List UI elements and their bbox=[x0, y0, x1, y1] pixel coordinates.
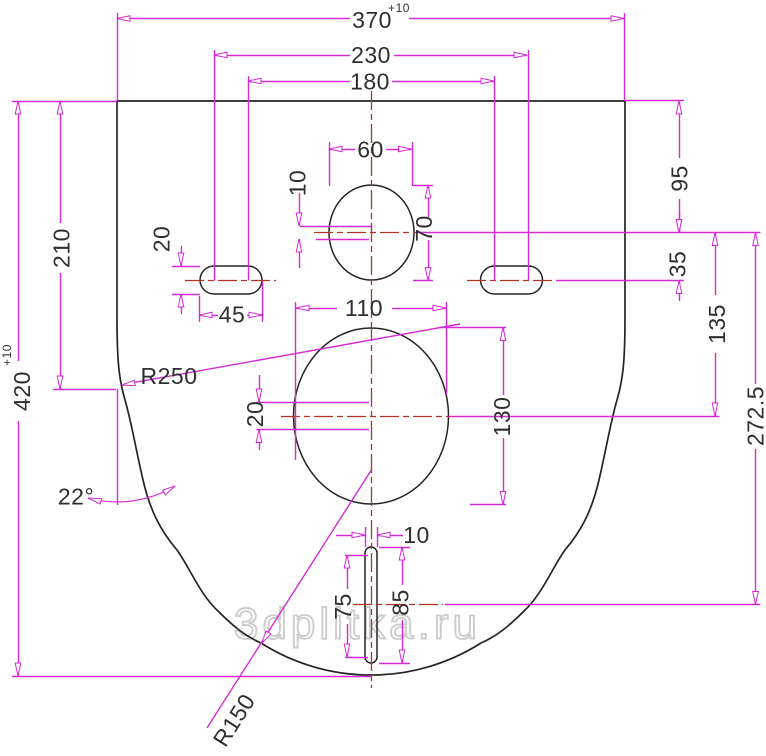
svg-text:+10: +10 bbox=[388, 1, 410, 15]
svg-text:85: 85 bbox=[388, 589, 414, 616]
svg-text:210: 210 bbox=[49, 228, 75, 268]
svg-text:45: 45 bbox=[219, 302, 246, 328]
svg-text:35: 35 bbox=[665, 251, 691, 278]
svg-text:R150: R150 bbox=[208, 689, 261, 751]
svg-text:22°: 22° bbox=[58, 484, 94, 510]
svg-text:R250: R250 bbox=[141, 363, 198, 389]
svg-text:130: 130 bbox=[489, 397, 515, 437]
svg-text:230: 230 bbox=[351, 42, 391, 68]
svg-text:110: 110 bbox=[345, 295, 383, 321]
svg-text:75: 75 bbox=[330, 593, 356, 620]
svg-text:20: 20 bbox=[242, 401, 268, 428]
svg-text:10: 10 bbox=[403, 522, 430, 548]
svg-text:135: 135 bbox=[704, 304, 730, 344]
svg-text:70: 70 bbox=[411, 215, 437, 242]
svg-text:20: 20 bbox=[149, 226, 175, 253]
svg-text:10: 10 bbox=[285, 170, 311, 197]
svg-text:+10: +10 bbox=[0, 344, 14, 366]
svg-text:60: 60 bbox=[357, 137, 384, 163]
svg-text:3dplitka.ru: 3dplitka.ru bbox=[234, 600, 481, 649]
svg-text:95: 95 bbox=[667, 165, 693, 192]
svg-text:370: 370 bbox=[352, 7, 392, 33]
svg-text:420: 420 bbox=[9, 371, 35, 411]
svg-text:180: 180 bbox=[350, 69, 390, 95]
svg-text:272.5: 272.5 bbox=[743, 386, 766, 446]
